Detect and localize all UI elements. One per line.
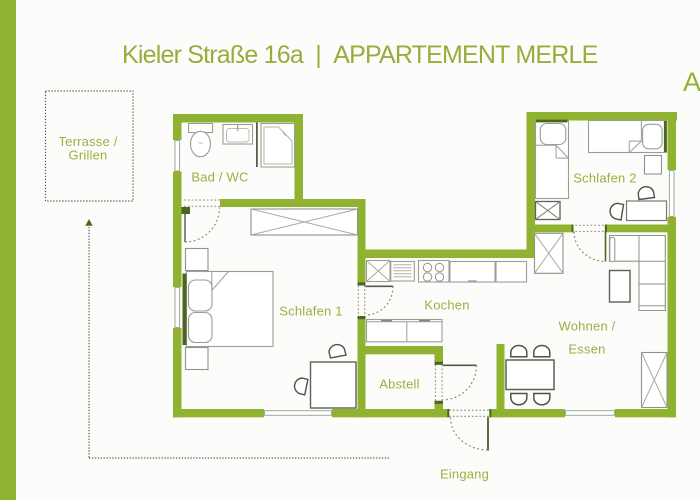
- svg-text:Essen: Essen: [568, 342, 605, 357]
- svg-text:Wohnen /: Wohnen /: [558, 319, 615, 334]
- svg-text:A: A: [683, 67, 700, 97]
- svg-text:Eingang: Eingang: [440, 467, 489, 482]
- svg-text:Kochen: Kochen: [424, 298, 469, 313]
- svg-text:Schlafen 2: Schlafen 2: [573, 171, 636, 186]
- svg-text:Bad / WC: Bad / WC: [191, 170, 248, 185]
- svg-text:Kieler Straße 16a | APPARTEM: Kieler Straße 16a | APPARTEMENT MERLE: [122, 41, 598, 69]
- svg-text:Grillen: Grillen: [69, 148, 108, 163]
- svg-text:Abstell: Abstell: [379, 377, 419, 392]
- svg-text:Schlafen 1: Schlafen 1: [279, 304, 342, 319]
